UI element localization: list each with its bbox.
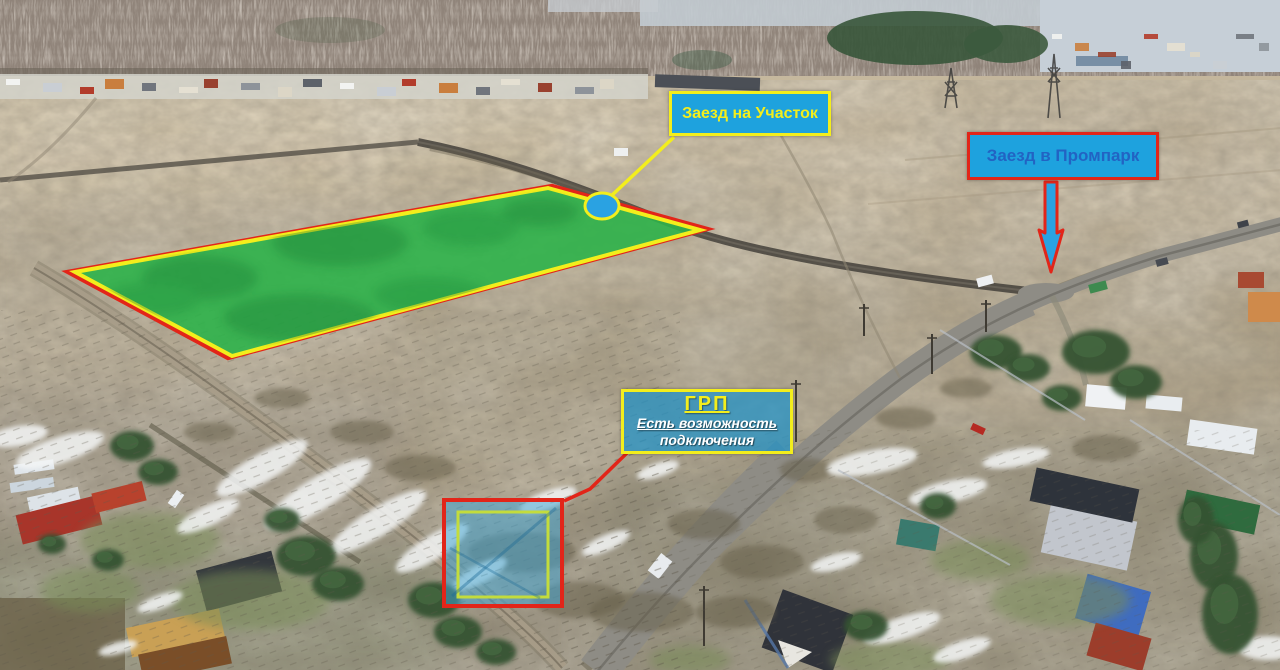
distant-house <box>1052 34 1062 39</box>
village-house <box>303 79 322 87</box>
distant-house <box>1098 52 1116 57</box>
village-house <box>476 87 490 95</box>
plot-entrance-callout: Заезд на Участок <box>669 91 831 136</box>
distant-house <box>1121 61 1131 69</box>
village-house <box>179 87 198 93</box>
village-house <box>105 79 124 89</box>
distant-house <box>1213 61 1227 69</box>
village-house <box>439 83 458 93</box>
village-house <box>6 79 20 85</box>
scrub-texture <box>560 430 1280 670</box>
annotated-aerial-photo: Заезд на Участок Заезд в Промпарк ГРП Ес… <box>0 0 1280 670</box>
village-house <box>402 79 416 86</box>
grp-callout: ГРП Есть возможность подключения <box>621 389 793 454</box>
conifer-tree <box>978 339 1004 356</box>
village-house <box>340 83 354 89</box>
village-house <box>600 79 614 89</box>
scrub-patch <box>876 407 936 429</box>
conifer-tree <box>1013 358 1035 372</box>
village-house <box>142 83 156 91</box>
conifer-tree <box>1072 336 1106 358</box>
grp-callout-title: ГРП <box>684 394 729 415</box>
village-house <box>538 83 552 92</box>
conifer-tree <box>1118 369 1144 386</box>
distant-house <box>1075 43 1089 51</box>
village-house <box>575 87 594 94</box>
red-roof-shed <box>1238 272 1264 288</box>
grp-callout-line2: подключения <box>660 432 754 449</box>
distant-house <box>1167 43 1185 51</box>
distant-house <box>1236 34 1254 39</box>
village-house <box>377 87 396 96</box>
grp-callout-line1: Есть возможность <box>637 415 777 432</box>
prompark-entrance-callout: Заезд в Промпарк <box>967 132 1159 180</box>
village-house <box>204 79 218 88</box>
distant-house <box>1144 34 1158 39</box>
scrub-patch <box>940 378 992 398</box>
plot-entrance-callout-text: Заезд на Участок <box>682 105 818 123</box>
village-house <box>278 87 292 97</box>
distant-house <box>1259 43 1269 51</box>
orange-house <box>1248 292 1280 322</box>
entrance-marker <box>585 193 619 219</box>
village-house <box>80 87 94 94</box>
white-shed <box>614 148 628 156</box>
village-house <box>501 79 520 85</box>
village-house <box>241 83 260 90</box>
aerial-photo-scene <box>0 0 1280 670</box>
village-house <box>43 83 62 92</box>
prompark-entrance-callout-text: Заезд в Промпарк <box>987 146 1140 166</box>
distant-house <box>1190 52 1200 57</box>
